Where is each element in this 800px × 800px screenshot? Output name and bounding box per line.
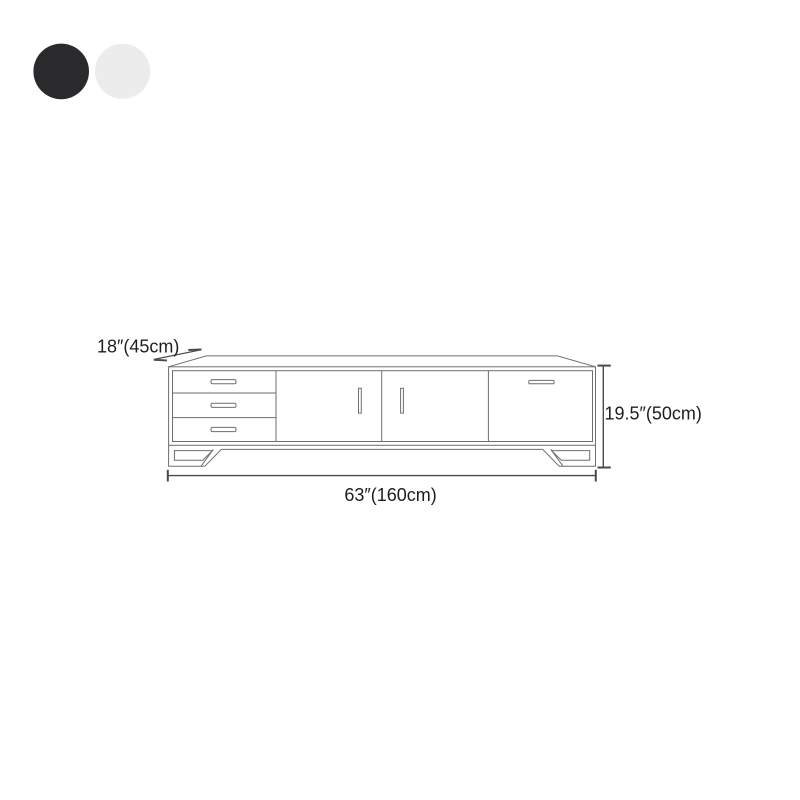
svg-text:63″(160cm): 63″(160cm) [344, 485, 436, 505]
svg-text:19.5″(50cm): 19.5″(50cm) [605, 404, 702, 424]
svg-text:18″(45cm): 18″(45cm) [97, 337, 179, 357]
